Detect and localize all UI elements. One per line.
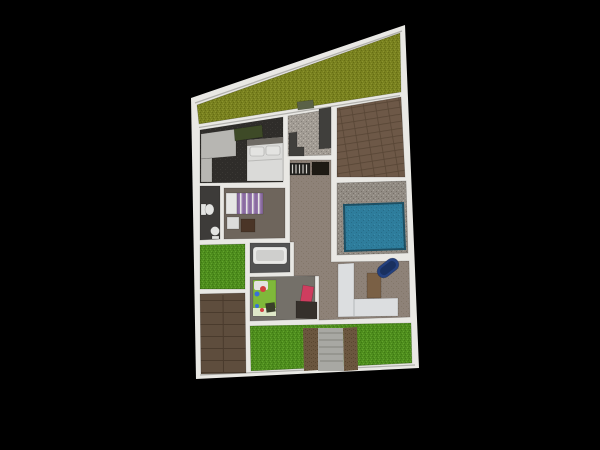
stage [0, 0, 600, 450]
toy-blue-small [255, 304, 259, 308]
double-bed[interactable] [247, 137, 283, 181]
toy-blue [255, 292, 260, 297]
concrete-step-path[interactable] [318, 328, 344, 371]
staircase[interactable] [290, 163, 310, 175]
dark-cabinet[interactable] [312, 162, 329, 175]
wardrobe-side[interactable] [201, 158, 212, 182]
dirt-strip-left[interactable] [303, 328, 318, 371]
floorplan-viewport[interactable] [0, 0, 600, 450]
toy-red-small [260, 308, 264, 312]
wood-floor-room[interactable] [337, 97, 405, 177]
dark-desk[interactable] [296, 301, 317, 319]
wardrobe[interactable] [201, 129, 236, 159]
left-grass-patch[interactable] [200, 244, 245, 289]
toy-red [260, 286, 266, 292]
purple-striped-bed[interactable] [226, 193, 263, 214]
ottoman[interactable] [241, 219, 255, 232]
dark-toy[interactable] [265, 302, 275, 312]
dirt-strip-right[interactable] [343, 327, 358, 371]
kitchen-island[interactable] [319, 107, 331, 149]
pillow [266, 146, 280, 155]
pedestal-sink[interactable] [211, 227, 220, 240]
bathtub[interactable] [253, 247, 287, 264]
coffee-table[interactable] [367, 273, 381, 298]
green-table[interactable] [297, 100, 314, 110]
toilet[interactable] [201, 204, 214, 215]
driveway-center-seam [223, 295, 224, 372]
swimming-pool[interactable] [344, 203, 405, 251]
nightstand[interactable] [227, 217, 239, 229]
pillow [250, 147, 264, 156]
